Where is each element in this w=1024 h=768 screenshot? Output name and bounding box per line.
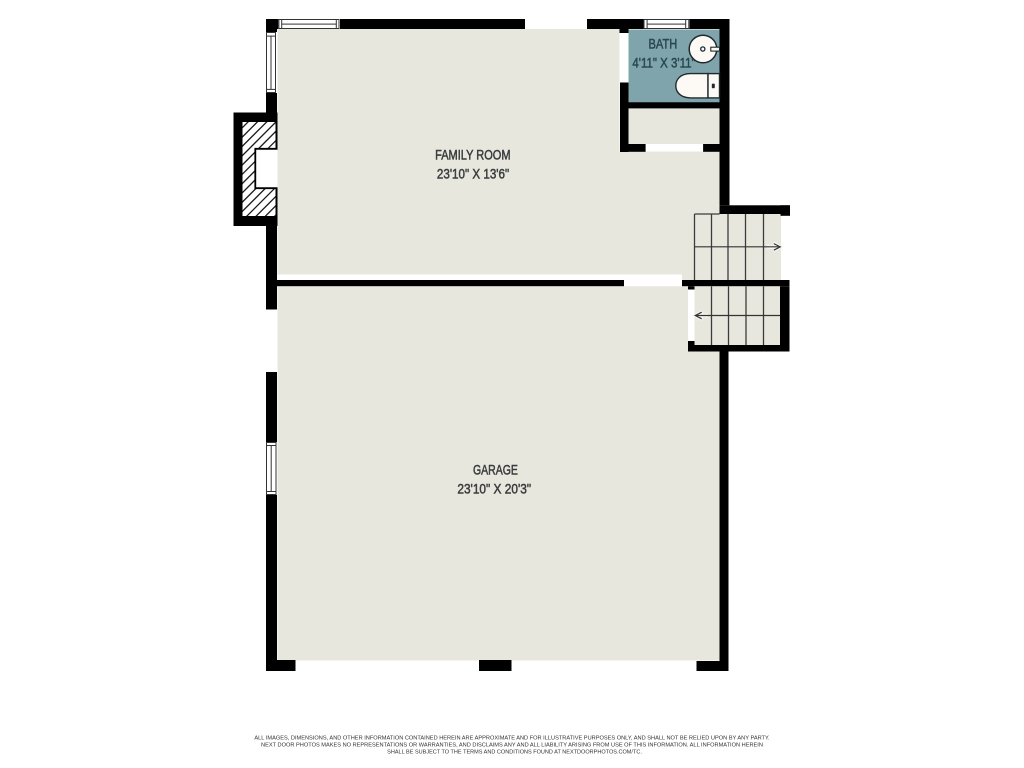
svg-text:4'11" X 3'11": 4'11" X 3'11" [632,56,695,71]
svg-text:ALL IMAGES, DIMENSIONS, AND OT: ALL IMAGES, DIMENSIONS, AND OTHER INFORM… [254,736,770,742]
svg-text:23'10" X 20'3": 23'10" X 20'3" [457,482,531,497]
svg-text:FAMILY ROOM: FAMILY ROOM [435,148,510,163]
svg-text:SHALL BE SUBJECT TO THE TERMS: SHALL BE SUBJECT TO THE TERMS AND CONDIT… [387,749,642,755]
svg-text:BATH: BATH [649,37,678,52]
svg-text:GARAGE: GARAGE [473,462,518,478]
svg-text:NEXT DOOR PHOTOS MAKES NO REPR: NEXT DOOR PHOTOS MAKES NO REPRESENTATION… [261,743,763,749]
svg-text:23'10" X 13'6": 23'10" X 13'6" [437,167,509,182]
